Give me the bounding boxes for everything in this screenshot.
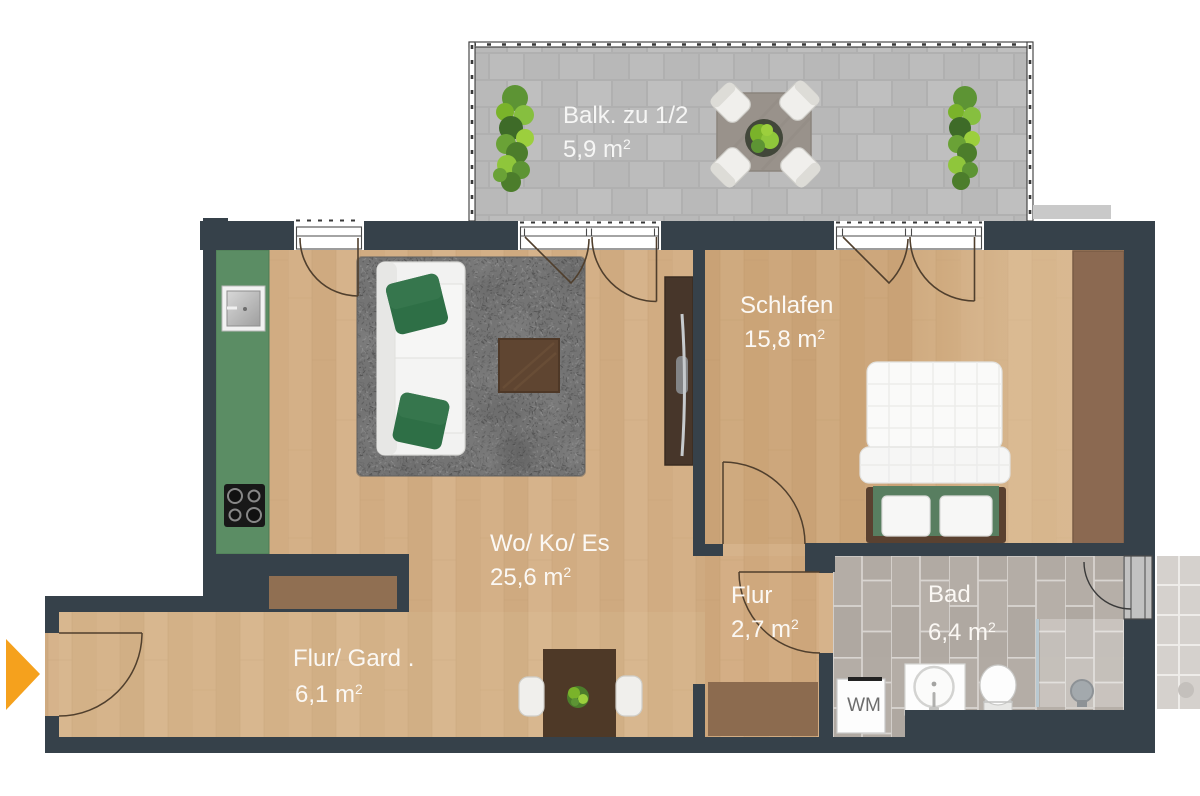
svg-text:Bad: Bad [928, 581, 971, 608]
svg-text:Flur: Flur [731, 582, 772, 609]
svg-text:25,6 m2: 25,6 m2 [490, 564, 571, 591]
svg-text:WM: WM [847, 695, 881, 716]
svg-text:6,4 m2: 6,4 m2 [928, 619, 996, 646]
svg-text:Balk. zu 1/2: Balk. zu 1/2 [563, 102, 688, 129]
svg-text:Flur/ Gard .: Flur/ Gard . [293, 645, 414, 672]
svg-text:2,7 m2: 2,7 m2 [731, 616, 799, 643]
svg-text:6,1 m2: 6,1 m2 [295, 681, 363, 708]
svg-text:5,9 m2: 5,9 m2 [563, 136, 631, 163]
svg-text:15,8 m2: 15,8 m2 [744, 326, 825, 353]
svg-text:Wo/ Ko/ Es: Wo/ Ko/ Es [490, 530, 610, 557]
svg-text:Schlafen: Schlafen [740, 292, 833, 319]
